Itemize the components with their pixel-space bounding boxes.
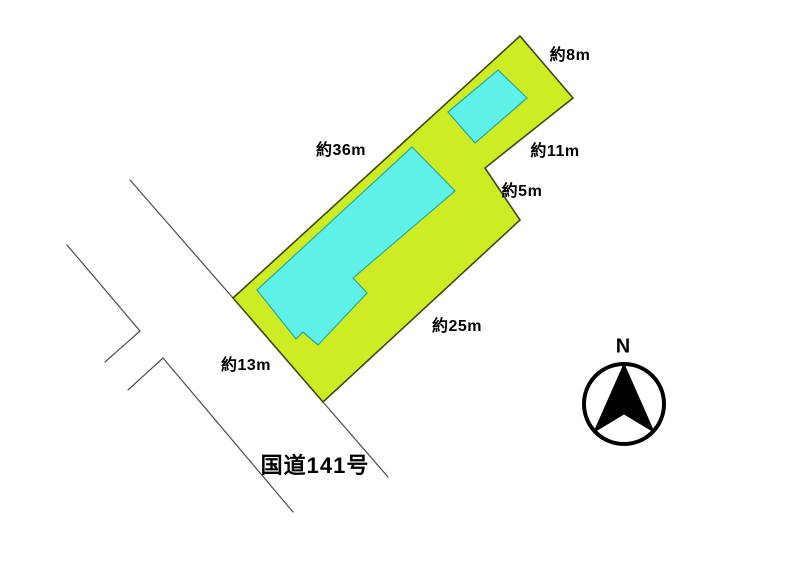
plot-map: 約8m 約36m 約11m 約5m 約25m 約13m 国道141号 N — [0, 0, 800, 566]
measurement-label-5m: 約5m — [502, 177, 543, 201]
measurement-label-11m: 約11m — [530, 137, 579, 161]
road-edge-line-side-street-upper — [67, 245, 140, 362]
road-edge-line-southwest — [128, 358, 293, 512]
road-edge-line-northeast-upper — [130, 180, 233, 298]
measurement-label-8m: 約8m — [550, 41, 591, 65]
north-label: N — [616, 336, 630, 359]
measurement-label-13m: 約13m — [221, 351, 271, 375]
measurement-label-25m: 約25m — [432, 312, 482, 336]
route-name-label: 国道141号 — [261, 448, 370, 480]
measurement-label-36m: 約36m — [316, 136, 366, 160]
compass — [584, 364, 664, 444]
north-arrow-icon — [594, 364, 654, 432]
plot-map-canvas — [0, 0, 800, 566]
